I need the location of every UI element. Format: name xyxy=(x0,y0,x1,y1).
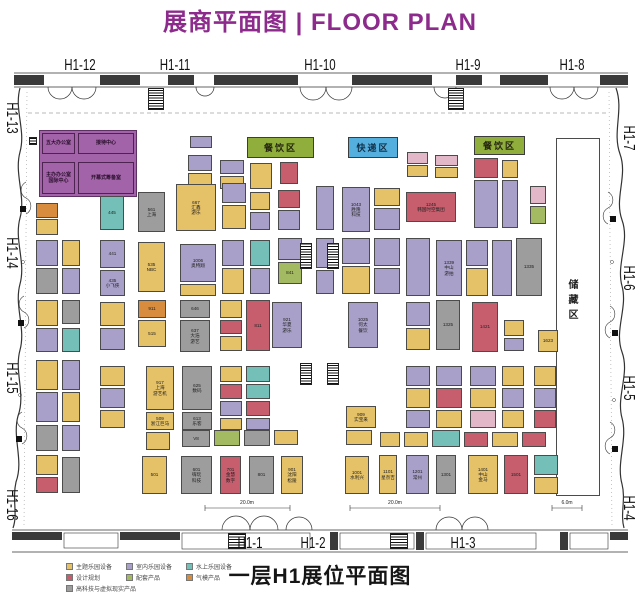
booth xyxy=(502,160,518,178)
booth: 535NBC xyxy=(138,242,165,292)
booth xyxy=(436,366,462,386)
dimension-label: 6.0m xyxy=(561,500,572,506)
booth xyxy=(534,388,556,408)
legend-swatch xyxy=(186,574,193,581)
stair-hatch xyxy=(29,137,37,145)
booth xyxy=(278,190,300,208)
legend-label: 主题乐园设备 xyxy=(76,562,112,571)
booth: 441 xyxy=(100,240,125,268)
booth xyxy=(436,388,462,408)
hall-label-h1-14: H1-14 xyxy=(2,231,20,275)
booth: 1201常州 xyxy=(406,455,429,494)
booth xyxy=(406,302,430,326)
booth: 1245韩国时空集团 xyxy=(406,192,456,222)
booth xyxy=(464,432,488,447)
booth xyxy=(36,328,58,352)
booth xyxy=(534,455,558,475)
booth xyxy=(62,268,80,294)
booth xyxy=(36,219,58,235)
booth: 701金慧数字 xyxy=(220,456,241,494)
booth xyxy=(100,366,125,386)
booth xyxy=(407,152,428,164)
booth xyxy=(36,392,58,422)
booth xyxy=(246,401,270,416)
booth xyxy=(246,366,270,382)
booth: 1501 xyxy=(504,455,528,494)
booth xyxy=(220,384,242,399)
booth xyxy=(346,430,372,445)
office-room: 接待中心 xyxy=(78,133,134,154)
booth: 646 xyxy=(180,300,210,318)
hall-label-h1-4: H1-4 xyxy=(619,491,637,526)
booth xyxy=(406,366,430,386)
booth xyxy=(246,418,270,430)
booth xyxy=(435,167,458,178)
booth xyxy=(214,430,240,446)
zone-dining-area-2: 餐饮区 xyxy=(474,136,525,155)
booth xyxy=(250,212,270,230)
booth: V8 xyxy=(182,430,210,447)
booth xyxy=(502,410,524,428)
booth xyxy=(474,180,498,228)
hall-label-h1-11: H1-11 xyxy=(154,57,196,75)
floor-plan: 餐饮区快递区餐饮区 储藏区 445561上海667汇鑫游乐1043胜隆科技124… xyxy=(0,0,640,597)
booth xyxy=(374,188,400,206)
legend-swatch xyxy=(126,563,133,570)
booth: 1339中山游拍 xyxy=(436,240,462,296)
hall-label-h1-1: H1-1 xyxy=(233,535,268,553)
booth xyxy=(62,360,80,390)
booth xyxy=(244,430,270,446)
booth xyxy=(180,284,216,296)
booth: 1401中山金马 xyxy=(468,455,498,494)
zone-express-area: 快递区 xyxy=(348,137,398,158)
booth xyxy=(435,155,458,166)
booth: 601嗨玩科技 xyxy=(181,456,212,494)
booth: 1335 xyxy=(516,238,542,296)
booth xyxy=(62,392,80,422)
booth xyxy=(470,410,496,428)
booth xyxy=(190,136,212,148)
booth xyxy=(220,366,242,382)
hall-label-h1-3: H1-3 xyxy=(446,535,481,553)
dimension-label: 20.0m xyxy=(240,500,254,506)
hall-label-h1-10: H1-10 xyxy=(298,57,342,75)
booth xyxy=(504,320,524,336)
booth xyxy=(406,410,430,428)
booth xyxy=(534,366,556,386)
booth: 667汇鑫游乐 xyxy=(176,184,216,231)
booth xyxy=(374,208,400,230)
booth xyxy=(220,336,242,351)
legend-swatch xyxy=(126,574,133,581)
booth xyxy=(220,160,244,174)
booth xyxy=(316,186,334,230)
booth xyxy=(222,240,244,266)
stair-hatch xyxy=(327,363,339,385)
booth: 515 xyxy=(138,320,166,347)
booth xyxy=(100,410,125,428)
booth xyxy=(406,388,430,408)
booth xyxy=(36,240,58,266)
booth xyxy=(342,266,370,294)
booth: 801 xyxy=(249,456,274,494)
booth xyxy=(534,477,558,494)
booth: 911 xyxy=(138,300,166,318)
booth xyxy=(530,206,546,224)
legend-item: 高科技与虚拟现实产品 xyxy=(66,584,136,593)
booth xyxy=(220,320,242,334)
legend-item: 主题乐园设备 xyxy=(66,562,112,571)
booth xyxy=(188,155,212,171)
booth xyxy=(62,425,80,451)
booth xyxy=(220,300,242,318)
booth xyxy=(406,328,430,350)
booth xyxy=(432,430,460,447)
booth xyxy=(246,384,270,399)
booth: 1001水利兴 xyxy=(345,456,369,494)
booth xyxy=(380,432,400,447)
booth xyxy=(436,410,462,428)
stair-hatch xyxy=(300,363,312,385)
stair-hatch xyxy=(327,243,339,269)
booth xyxy=(404,432,428,447)
booth xyxy=(220,401,242,416)
booth xyxy=(36,203,58,218)
stair-hatch xyxy=(300,243,312,269)
booth xyxy=(470,388,496,408)
booth xyxy=(36,455,58,475)
booth xyxy=(146,432,170,450)
bottom-title: 一层H1展位平面图 xyxy=(205,560,435,590)
booth xyxy=(100,328,125,350)
booth: 1006奥特翔 xyxy=(180,244,216,282)
wall-architecture xyxy=(0,0,640,597)
booth xyxy=(342,238,370,264)
hall-label-h1-7: H1-7 xyxy=(619,121,637,156)
legend-swatch xyxy=(66,585,73,592)
stair-hatch xyxy=(148,88,164,110)
hall-label-h1-8: H1-8 xyxy=(555,57,590,75)
booth xyxy=(278,238,302,260)
booth: 637大浩游艺 xyxy=(180,320,210,352)
booth xyxy=(274,430,298,445)
legend-label: 设计规划 xyxy=(76,573,100,582)
booth xyxy=(504,338,524,351)
office-room: 开幕式筹备室 xyxy=(78,162,134,194)
hall-label-h1-9: H1-9 xyxy=(451,57,486,75)
booth xyxy=(502,388,524,408)
storage-area-label: 储藏区 xyxy=(564,279,579,324)
booth xyxy=(36,268,58,294)
legend-label: 配套产品 xyxy=(136,573,160,582)
hall-label-h1-15: H1-15 xyxy=(2,356,20,400)
booth xyxy=(36,477,58,493)
booth: 921华夏游乐 xyxy=(272,302,302,348)
booth xyxy=(530,186,546,204)
booth: 1301 xyxy=(436,455,456,494)
booth xyxy=(222,268,244,294)
office-room: 主办办公室国际中心 xyxy=(42,162,75,194)
booth: 1325 xyxy=(436,300,460,350)
booth xyxy=(470,366,496,386)
booth xyxy=(100,388,125,408)
booth xyxy=(250,192,270,210)
booth xyxy=(502,180,518,228)
booth: 1421 xyxy=(472,302,498,352)
booth xyxy=(474,158,498,178)
booth xyxy=(534,410,556,428)
booth xyxy=(316,270,334,294)
booth xyxy=(374,268,400,294)
booth xyxy=(492,432,518,447)
booth xyxy=(36,300,58,326)
legend-swatch xyxy=(186,563,193,570)
legend-label: 室内乐园设备 xyxy=(136,562,172,571)
booth: 501 xyxy=(142,456,167,494)
legend-item: 室内乐园设备 xyxy=(126,562,172,571)
booth: 1101星奈吉 xyxy=(379,455,397,494)
hall-label-h1-13: H1-13 xyxy=(2,96,20,140)
hall-label-h1-6: H1-6 xyxy=(619,261,637,296)
legend-item: 设计规划 xyxy=(66,573,100,582)
booth: 841 xyxy=(278,262,302,284)
stair-hatch xyxy=(390,533,408,549)
booth xyxy=(406,238,430,296)
hall-label-h1-5: H1-5 xyxy=(619,371,637,406)
booth xyxy=(280,162,298,184)
booth xyxy=(522,432,546,447)
booth xyxy=(492,240,512,296)
hall-label-h1-16: H1-16 xyxy=(2,483,20,527)
booth: 561上海 xyxy=(138,192,165,232)
legend-item: 配套产品 xyxy=(126,573,160,582)
legend-swatch xyxy=(66,563,73,570)
booth xyxy=(36,425,58,451)
booth xyxy=(222,183,246,203)
booth: 625数码 xyxy=(182,366,212,410)
booth: 1043胜隆科技 xyxy=(342,187,370,232)
booth xyxy=(62,240,80,266)
booth: 435小飞侠 xyxy=(100,270,125,296)
booth xyxy=(466,268,488,296)
booth: 445 xyxy=(100,196,124,230)
booth: 1623 xyxy=(538,330,558,352)
booth: 509浙江巨马 xyxy=(146,412,174,430)
booth xyxy=(374,238,400,266)
booth: 917上海游艺机 xyxy=(146,366,174,410)
office-room: 五大办公室 xyxy=(42,133,75,154)
legend-label: 高科技与虚拟现实产品 xyxy=(76,584,136,593)
booth xyxy=(62,300,80,324)
booth xyxy=(100,302,125,326)
booth xyxy=(250,240,270,266)
booth xyxy=(62,457,80,493)
booth xyxy=(502,366,524,386)
booth xyxy=(250,268,270,294)
booth xyxy=(250,163,272,189)
booth xyxy=(36,360,58,390)
booth xyxy=(278,210,300,230)
stair-hatch xyxy=(448,88,464,110)
booth: 811 xyxy=(246,300,270,351)
zone-dining-area-1: 餐饮区 xyxy=(247,137,314,158)
booth xyxy=(62,328,80,352)
booth xyxy=(220,418,242,430)
hall-label-h1-12: H1-12 xyxy=(58,57,102,75)
booth: 901沈阳松陵 xyxy=(281,456,303,494)
booth: 909实宝来 xyxy=(346,406,376,428)
dimension-label: 20.0m xyxy=(388,500,402,506)
legend-swatch xyxy=(66,574,73,581)
floor-plan-page: 展商平面图 | FLOOR PLAN xyxy=(0,0,640,597)
booth xyxy=(407,165,428,177)
booth xyxy=(222,205,246,229)
booth: 1025何太餐饮 xyxy=(348,302,378,348)
booth: 613乐客 xyxy=(182,412,212,430)
hall-label-h1-2: H1-2 xyxy=(296,535,331,553)
booth xyxy=(466,240,488,266)
